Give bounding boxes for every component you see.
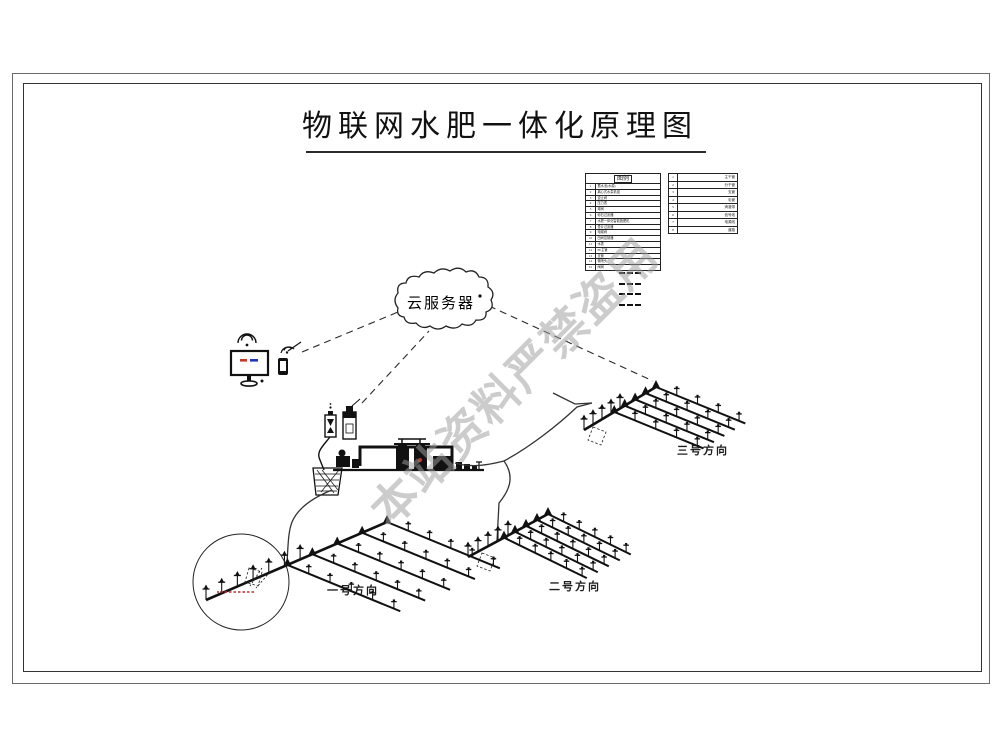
water-pool xyxy=(313,468,342,495)
diagram-canvas: 云服务器 xyxy=(0,0,1000,750)
pump-icon xyxy=(336,450,359,469)
cloud-label: 云服务器 xyxy=(407,295,475,312)
wifi-icon xyxy=(238,334,256,346)
smartphone-icon xyxy=(278,358,288,375)
drawing-sheet: 物联网水肥一体化原理图 图例 1蓄水池(水源)2离心式水泵机组3逆止阀4压力表5… xyxy=(0,0,1000,750)
monitor-icon xyxy=(231,351,268,386)
filter-tanks-icon xyxy=(394,439,430,469)
status-dot xyxy=(418,458,422,462)
fertilizer-tank-icon xyxy=(325,403,336,437)
link-cloud-station xyxy=(362,331,429,403)
sprinkler-fields xyxy=(203,380,746,611)
screen-red-bar xyxy=(240,359,247,362)
cloud-dot xyxy=(478,294,481,297)
link-cloud-field3 xyxy=(489,306,653,381)
suction-hose xyxy=(319,437,330,470)
detail-callout xyxy=(193,534,289,630)
fertilizer-machine-icon xyxy=(343,399,360,439)
field3-inlet xyxy=(553,393,592,404)
pipe-to-field1 xyxy=(287,490,332,563)
callout-circle xyxy=(193,534,289,630)
pipe-to-field3 xyxy=(504,403,592,461)
wifi-icon xyxy=(281,342,301,354)
link-cloud-terminals xyxy=(302,312,398,352)
screen-blue-bar xyxy=(250,359,258,362)
fertigation-station xyxy=(313,399,484,495)
cloud-server: 云服务器 xyxy=(395,268,493,329)
